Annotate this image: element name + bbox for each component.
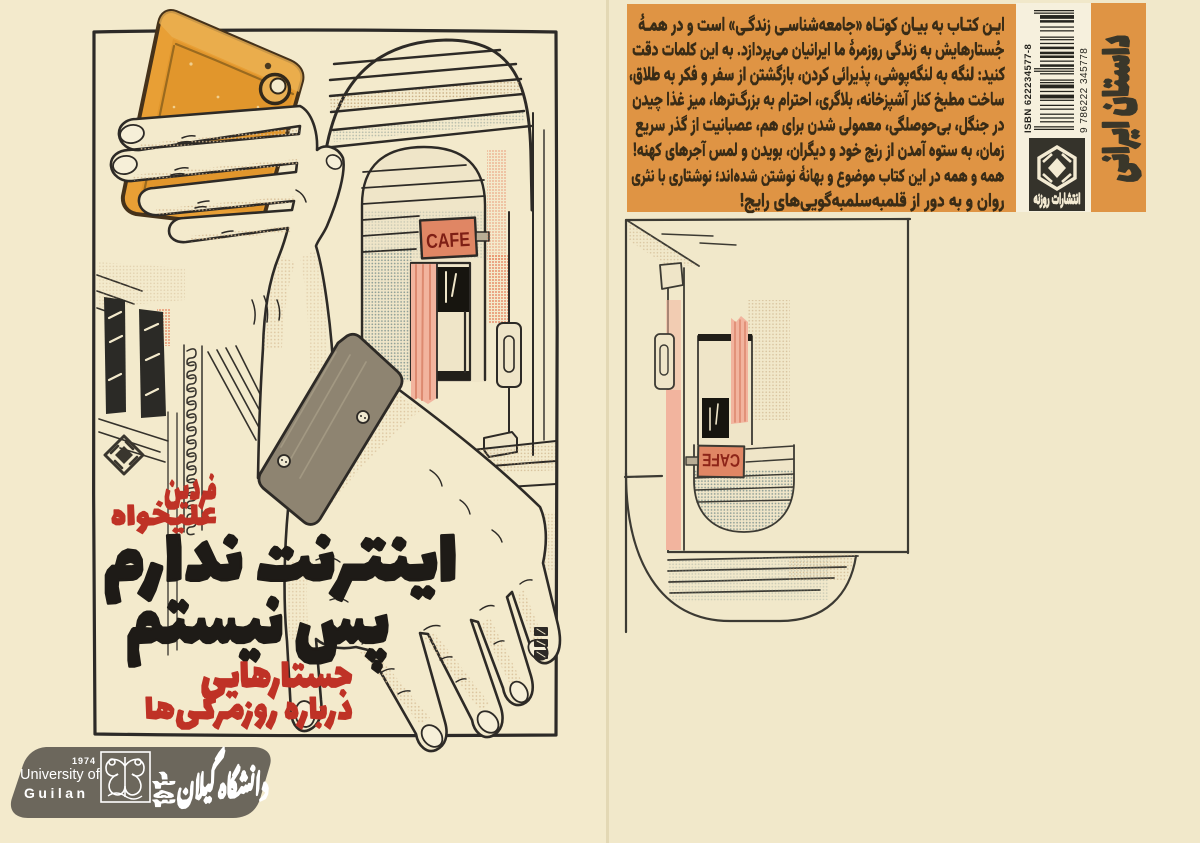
svg-text:1974: 1974 [72, 756, 96, 766]
svg-text:University of: University of [20, 767, 101, 783]
svg-text:ISBN 622234577-8: ISBN 622234577-8 [1023, 44, 1034, 133]
svg-text:CAFE: CAFE [702, 450, 740, 471]
svg-text:CAFE: CAFE [426, 229, 471, 253]
svg-text:Guilan: Guilan [24, 785, 89, 801]
svg-text:9 786222 345778: 9 786222 345778 [1079, 48, 1090, 133]
